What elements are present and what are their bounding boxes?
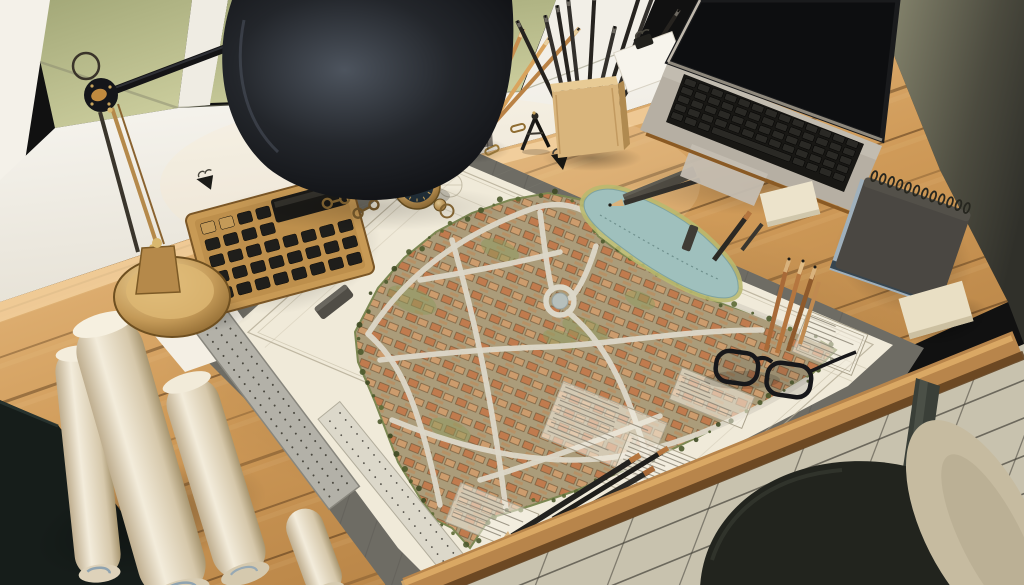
lamp-joint [84,78,118,112]
architect-desk-scene: Photorealistic top-down view of an archi… [0,0,1024,585]
wooden-cup [550,76,630,158]
window-glass-left [40,0,192,128]
scene-canvas [0,0,1024,585]
